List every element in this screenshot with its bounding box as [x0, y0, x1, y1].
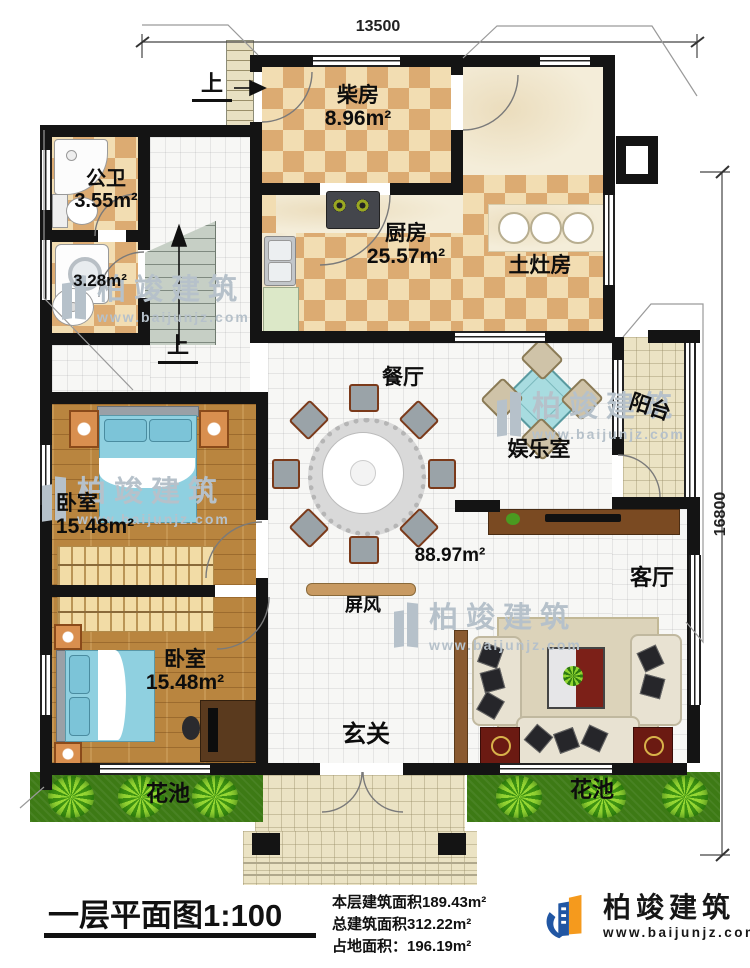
wall: [138, 298, 150, 333]
wall: [250, 331, 455, 343]
desk-tv: [208, 708, 218, 752]
dining-chair: [428, 459, 456, 489]
wall: [612, 337, 624, 360]
sliding-window: [455, 331, 545, 343]
wall: [256, 578, 268, 775]
dining-chair: [349, 384, 379, 412]
room-label-huachi-right: 花池: [570, 778, 614, 802]
coffee-table-plant: [563, 666, 583, 686]
pillow: [104, 419, 147, 442]
room-name: 卧室: [56, 492, 134, 515]
bed-sheet: [98, 650, 126, 740]
hall-to-bedroom-floor: [52, 345, 150, 392]
plan-title-underline: [44, 933, 316, 938]
room-label-keting: 客厅: [630, 566, 674, 590]
wall: [648, 330, 700, 343]
window: [40, 150, 52, 210]
window: [40, 445, 52, 505]
room-area: 15.48m²: [146, 671, 224, 694]
room-area: 25.57m²: [367, 245, 445, 268]
wall: [603, 67, 615, 195]
room-area: 8.96m²: [325, 107, 392, 130]
window: [689, 555, 701, 705]
pillow: [149, 419, 192, 442]
stove-burner: [356, 199, 369, 212]
wardrobe: [57, 546, 214, 586]
room-name: 玄关: [342, 722, 390, 748]
tuzao-burner: [498, 212, 530, 244]
room-label-chufang: 厨房 25.57m²: [367, 222, 445, 268]
room-label-xuanguan: 玄关: [342, 722, 390, 748]
window: [313, 55, 400, 67]
flower-plant: [662, 776, 708, 818]
wall: [250, 122, 262, 333]
chimney-flue: [626, 146, 648, 174]
stairs-up-label-mid: 上: [158, 328, 198, 364]
wall: [612, 437, 624, 455]
wall: [138, 137, 150, 250]
room-area: 3.55m²: [74, 190, 137, 212]
flower-plant: [496, 776, 542, 818]
shower-drain: [66, 150, 77, 161]
tuzao-burner: [562, 212, 594, 244]
nightstand: [199, 410, 229, 448]
wall: [438, 833, 466, 855]
wall: [40, 392, 268, 404]
side-table-ring: [491, 736, 511, 756]
dimension-top: 13500: [356, 18, 401, 36]
room-name: 厨房: [367, 222, 445, 245]
room-name: 公卫: [74, 168, 137, 190]
brand-logo-icon: [540, 890, 594, 944]
wall: [268, 763, 320, 775]
dining-table-center: [350, 460, 376, 486]
flower-plant: [48, 776, 94, 818]
room-name: 娱乐室: [508, 438, 571, 461]
room-name: 柴房: [325, 84, 392, 107]
flower-plant: [192, 776, 238, 818]
brand-name: 柏竣建筑: [603, 894, 750, 922]
side-table-ring: [644, 736, 664, 756]
room-label-laundry: 3.28m²: [73, 272, 127, 291]
wood-partition: [454, 630, 468, 765]
room-name: 客厅: [630, 566, 674, 590]
stat-total-area: 总建筑面积312.22m²: [332, 913, 471, 934]
room-label-huachi-left: 花池: [146, 782, 190, 806]
tv-screen: [545, 514, 621, 522]
wall: [40, 125, 262, 137]
room-label-canting: 餐厅: [382, 366, 424, 389]
room-name: 花池: [570, 778, 614, 802]
room-name: 土灶房: [509, 254, 572, 277]
wall: [451, 130, 463, 195]
cabinet-plant: [506, 513, 520, 525]
stat-land-area: 占地面积：196.19m²: [332, 935, 471, 956]
tuzao-burner: [530, 212, 562, 244]
window: [540, 55, 590, 67]
stairs-up-label-top: 上: [192, 66, 232, 102]
window: [603, 195, 615, 285]
room-label-tuzaofang: 土灶房: [509, 254, 572, 277]
window: [100, 763, 210, 775]
plan-scale: 1:100: [203, 898, 282, 933]
porch-step-line: [243, 874, 477, 876]
kitchen-cabinet: [263, 287, 299, 333]
window: [500, 763, 612, 775]
wall: [451, 55, 463, 75]
wall: [40, 585, 215, 597]
window: [612, 360, 624, 437]
nightstand: [54, 624, 82, 650]
stat-floor-area: 本层建筑面积189.43m²: [332, 891, 486, 912]
room-area: 3.28m²: [73, 272, 127, 291]
room-label-chaifang: 柴房 8.96m²: [325, 84, 392, 130]
room-label-bedroom-upper: 卧室 15.48m²: [56, 492, 134, 538]
wall: [40, 333, 150, 345]
brand-website: www.baijunjz.com: [603, 925, 750, 940]
stove-burner: [333, 199, 346, 212]
room-label-yuleshi: 娱乐室: [508, 438, 571, 461]
wall: [250, 183, 320, 195]
brand-logo: 柏竣建筑 www.baijunjz.com: [540, 890, 750, 944]
tv-wall-stub: [455, 500, 500, 512]
pillow: [69, 655, 90, 694]
sink-bowl: [268, 262, 292, 282]
sink-bowl: [268, 240, 292, 261]
window: [40, 655, 52, 715]
wash-basin-drain: [68, 302, 78, 312]
dimension-right: 16800: [712, 479, 730, 549]
porch-floor: [255, 775, 465, 831]
room-label-gongwei: 公卫 3.55m²: [74, 168, 137, 212]
tuzaofang-marble-area: [463, 67, 603, 175]
open-area-label: 88.97m²: [415, 546, 486, 567]
plan-title-text: 一层平面图: [48, 898, 203, 933]
wall: [545, 331, 615, 343]
room-name: 餐厅: [382, 366, 424, 389]
balcony-railing: [684, 343, 696, 497]
room-name: 卧室: [146, 648, 224, 671]
dining-chair: [349, 536, 379, 564]
dining-chair: [272, 459, 300, 489]
porch-step-line: [243, 862, 477, 864]
plan-title: 一层平面图1:100: [48, 890, 282, 935]
pingfeng-label: 屏风: [345, 596, 381, 616]
wall: [252, 833, 280, 855]
room-label-bedroom-lower: 卧室 15.48m²: [146, 648, 224, 694]
room-area: 15.48m²: [56, 515, 134, 538]
nightstand: [69, 410, 99, 448]
wall: [256, 392, 268, 520]
window: [40, 240, 52, 300]
room-name: 花池: [146, 782, 190, 806]
pillow: [69, 697, 90, 736]
floor-plan-canvas: 柏竣建筑 www.baijunjz.com 柏竣建筑 www.baijunjz.…: [0, 0, 750, 968]
desk-chair: [182, 716, 200, 740]
